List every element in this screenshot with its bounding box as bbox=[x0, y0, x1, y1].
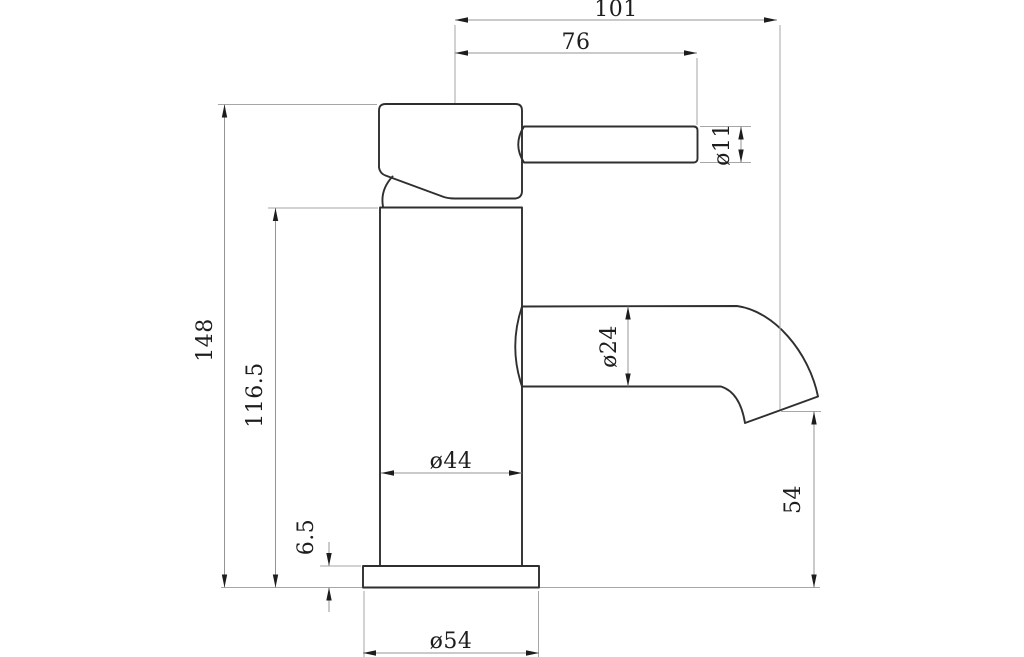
extension-lines-group bbox=[218, 25, 821, 657]
drawing-sheet: 101 76 148 116.5 6.5 ø24 ø11 54 ø44 ø54 bbox=[0, 0, 1024, 657]
arrow-76-left bbox=[455, 50, 468, 55]
arrow-101-left bbox=[455, 17, 468, 22]
arrow-11-top bbox=[738, 127, 743, 140]
dim-label-54: 54 bbox=[781, 485, 806, 514]
arrow-65-bottom bbox=[326, 588, 331, 601]
arrow-148-top bbox=[222, 105, 227, 118]
dim-label-148: 148 bbox=[193, 318, 218, 362]
arrowheads-group bbox=[222, 17, 817, 655]
arrow-11-bottom bbox=[738, 150, 743, 163]
arrow-24-top bbox=[625, 307, 630, 320]
arrow-76-right bbox=[684, 50, 697, 55]
dim-label-dia24: ø24 bbox=[597, 325, 622, 368]
arrow-148-bottom bbox=[222, 575, 227, 588]
dim-label-6-5: 6.5 bbox=[294, 519, 319, 556]
arrow-44-right bbox=[509, 470, 522, 475]
handle-head-outline bbox=[379, 104, 522, 199]
dimension-labels-group: 101 76 148 116.5 6.5 ø24 ø11 54 ø44 ø54 bbox=[193, 0, 806, 654]
dimension-lines-group bbox=[225, 20, 815, 653]
arrow-65-top bbox=[326, 553, 331, 566]
dim-label-dia44: ø44 bbox=[430, 449, 473, 474]
spout-root-arc bbox=[515, 307, 522, 387]
arrow-116-bottom bbox=[273, 575, 278, 588]
faucet-outline-group bbox=[363, 104, 818, 588]
arrow-54base-right bbox=[526, 650, 539, 655]
dim-label-dia11: ø11 bbox=[710, 123, 735, 166]
body-column-outline bbox=[380, 208, 522, 567]
dim-label-101: 101 bbox=[594, 0, 638, 22]
arrow-116-top bbox=[273, 208, 278, 221]
arrow-54base-left bbox=[363, 650, 376, 655]
dim-label-76: 76 bbox=[562, 30, 591, 55]
faucet-technical-drawing: 101 76 148 116.5 6.5 ø24 ø11 54 ø44 ø54 bbox=[0, 0, 1024, 657]
dim-label-dia54: ø54 bbox=[430, 629, 473, 654]
arrow-44-left bbox=[381, 470, 394, 475]
arrow-24-bottom bbox=[625, 374, 630, 387]
handle-pivot-arc bbox=[382, 177, 392, 207]
dim-label-116-5: 116.5 bbox=[243, 362, 268, 427]
base-plate-outline bbox=[363, 566, 539, 588]
spout-outline bbox=[522, 306, 818, 423]
arrow-54-top bbox=[811, 412, 816, 425]
arrow-54-bottom bbox=[811, 575, 816, 588]
handle-lever-outline bbox=[518, 127, 697, 163]
arrow-101-right bbox=[764, 17, 777, 22]
